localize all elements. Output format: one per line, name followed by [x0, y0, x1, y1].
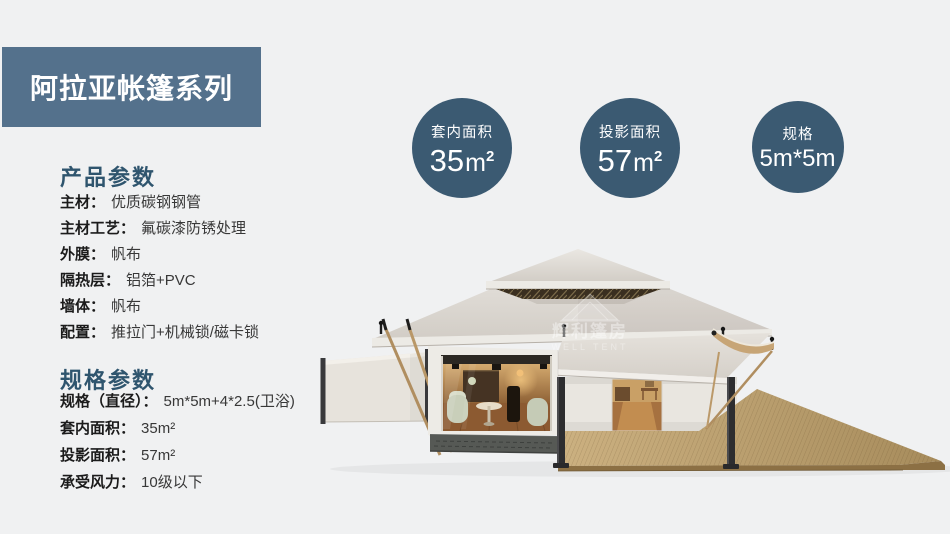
series-title: 阿拉亚帐篷系列: [30, 67, 233, 107]
spec-params-heading: 规格参数: [60, 363, 156, 395]
stone-base: [430, 434, 558, 453]
param-row-wind-resistance: 承受风力： 10级以下: [60, 475, 295, 491]
param-value: 推拉门+机械锁/磁卡锁: [111, 325, 259, 341]
series-title-banner: 阿拉亚帐篷系列: [2, 47, 261, 127]
doorway-opening: [612, 379, 662, 431]
side-panel-post: [321, 358, 326, 424]
badge-value: 5m*5m: [759, 147, 836, 171]
watermark-text-en: WELL TENT: [551, 342, 628, 352]
badge-value: 35m2: [430, 145, 495, 176]
product-params-list: 主材： 优质碳钢钢管 主材工艺： 氟碳漆防锈处理 外膜： 帆布 隔热层： 铝箔+…: [60, 195, 259, 341]
param-value: 帆布: [111, 299, 141, 315]
sideboard: [615, 387, 630, 401]
badge-inner-area: 套内面积 35m2: [412, 98, 512, 198]
param-value: 优质碳钢钢管: [111, 195, 201, 211]
product-params-heading: 产品参数: [60, 160, 156, 192]
param-label: 主材：: [60, 195, 105, 211]
param-label: 外膜：: [60, 247, 105, 263]
dark-chair: [507, 386, 520, 422]
param-value: 5m*5m+4*2.5(卫浴): [164, 394, 295, 410]
param-label: 配置：: [60, 325, 105, 341]
param-label: 套内面积：: [60, 421, 135, 437]
param-label: 承受风力：: [60, 475, 135, 491]
param-row-material-craft: 主材工艺： 氟碳漆防锈处理: [60, 221, 259, 237]
glass-wall-section: [428, 346, 558, 435]
param-label: 墙体：: [60, 299, 105, 315]
watermark-text-cn: 辉利篷房: [552, 321, 628, 341]
param-row-inner-area: 套内面积： 35m²: [60, 421, 295, 437]
badge-label: 规格: [783, 123, 814, 144]
param-row-outer-membrane: 外膜： 帆布: [60, 247, 259, 263]
param-value: 氟碳漆防锈处理: [141, 221, 246, 237]
param-row-insulation: 隔热层： 铝箔+PVC: [60, 273, 259, 289]
lamp: [517, 370, 524, 377]
badge-projection-area: 投影面积 57m2: [580, 98, 680, 198]
armchair-right: [527, 398, 548, 426]
param-row-size: 规格（直径）： 5m*5m+4*2.5(卫浴): [60, 394, 295, 410]
desk: [641, 388, 658, 391]
param-row-wall: 墙体： 帆布: [60, 299, 259, 315]
product-spec-slide: 阿拉亚帐篷系列 产品参数 主材： 优质碳钢钢管 主材工艺： 氟碳漆防锈处理 外膜…: [0, 0, 950, 534]
param-value: 35m²: [141, 421, 175, 437]
param-row-material: 主材： 优质碳钢钢管: [60, 195, 259, 211]
param-label: 投影面积：: [60, 448, 135, 464]
badge-label: 投影面积: [599, 121, 661, 142]
param-value: 10级以下: [141, 475, 203, 491]
side-panel-left: [321, 349, 432, 424]
param-label: 隔热层：: [60, 273, 120, 289]
badge-size: 规格 5m*5m: [752, 101, 844, 193]
param-label: 主材工艺：: [60, 221, 135, 237]
param-row-projection-area: 投影面积： 57m²: [60, 448, 295, 464]
window-header: [441, 355, 552, 364]
spec-params-list: 规格（直径）： 5m*5m+4*2.5(卫浴) 套内面积： 35m² 投影面积：…: [60, 394, 295, 491]
param-row-config: 配置： 推拉门+机械锁/磁卡锁: [60, 325, 259, 341]
lattice-vent: [496, 289, 661, 299]
tent-render-illustration: 辉利篷房 WELL TENT: [318, 230, 950, 530]
badge-value: 57m2: [598, 145, 663, 176]
badge-label: 套内面积: [431, 121, 493, 142]
param-label: 规格（直径）：: [60, 394, 158, 410]
wall-picture: [645, 381, 654, 387]
param-value: 铝箔+PVC: [126, 273, 196, 289]
param-value: 57m²: [141, 448, 175, 464]
param-value: 帆布: [111, 247, 141, 263]
